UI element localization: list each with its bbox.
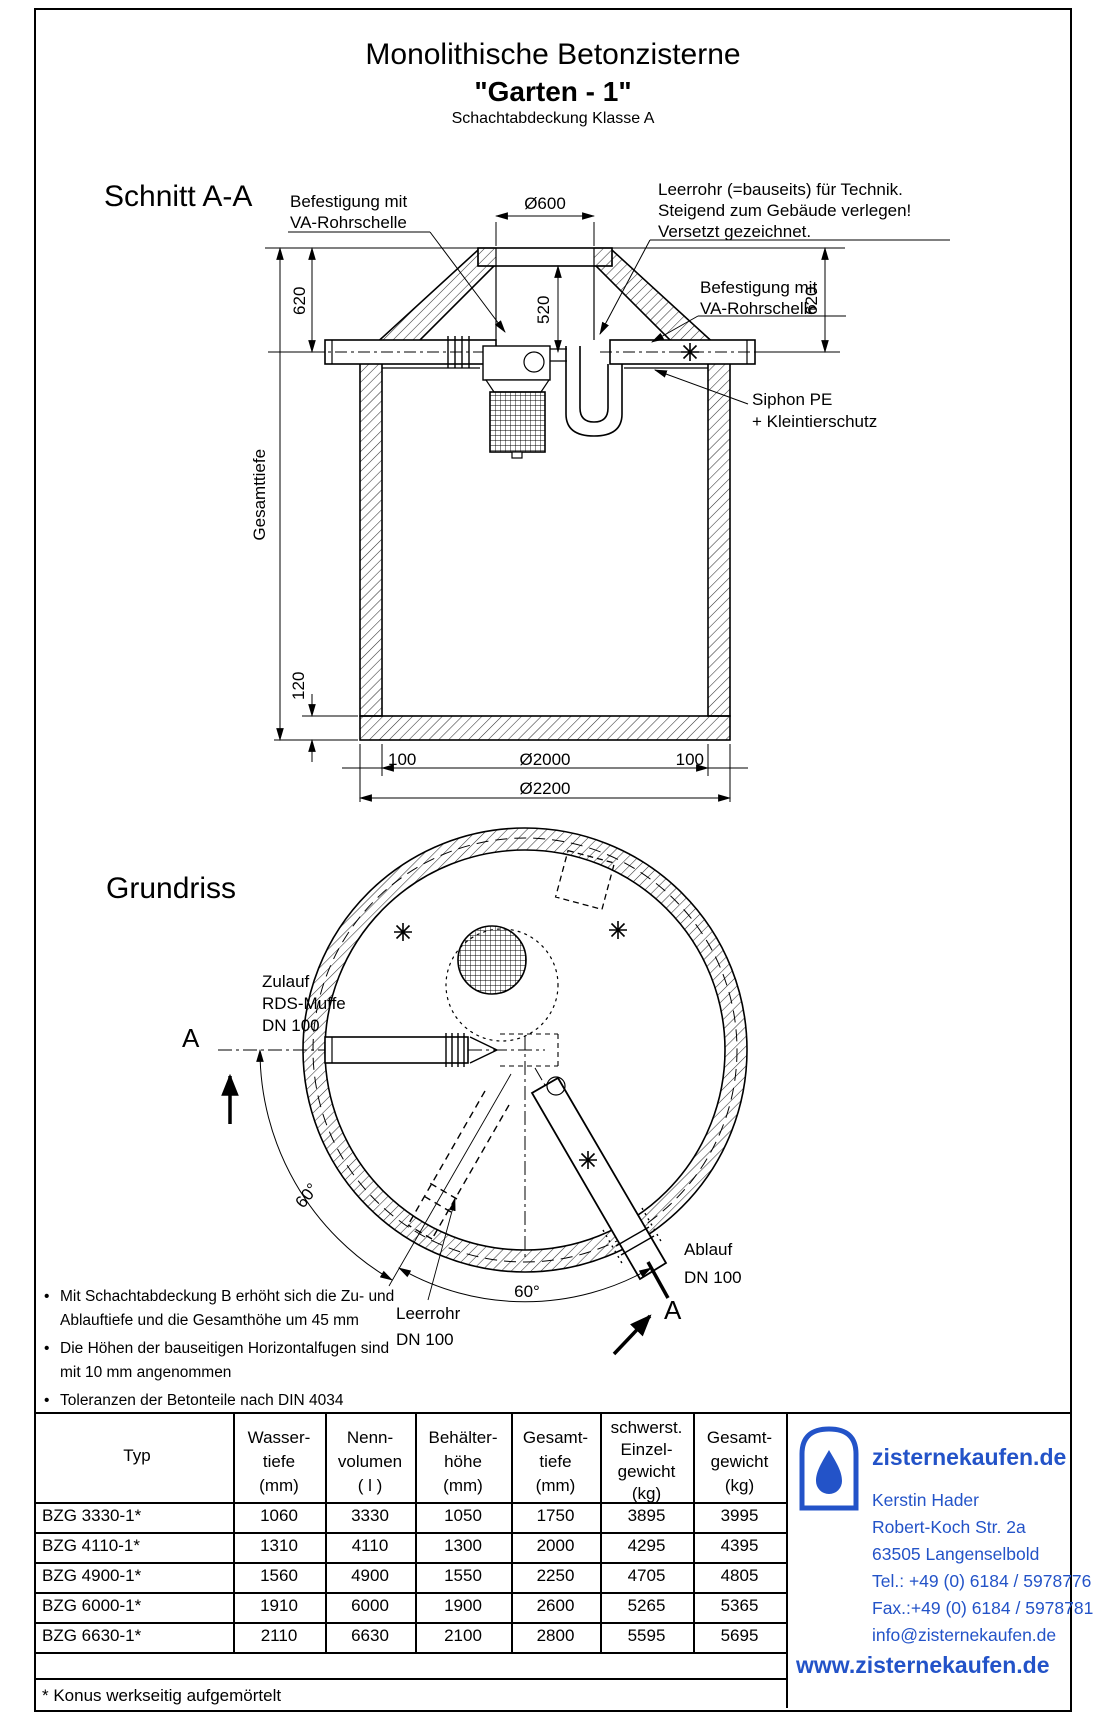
asterisk-mark bbox=[609, 921, 627, 939]
company-contact-line: 63505 Langenselbold bbox=[872, 1544, 1039, 1564]
table-top-border bbox=[36, 1412, 1070, 1414]
dim-inner-diameter: Ø2000 bbox=[495, 750, 595, 770]
note-bullet: • bbox=[44, 1392, 49, 1410]
siphon-label-line1: Siphon PE bbox=[752, 390, 832, 410]
company-cell-divider bbox=[786, 1412, 788, 1708]
dim-shaft-diameter: Ø600 bbox=[496, 194, 594, 214]
dim-620-left: 620 bbox=[290, 261, 310, 341]
table-cell: 3330 bbox=[325, 1506, 415, 1526]
drain-label-line2: DN 100 bbox=[684, 1268, 742, 1288]
table-row-typ: BZG 3330-1* bbox=[42, 1506, 141, 1526]
inlet-label-line2: RDS-Muffe bbox=[262, 994, 346, 1014]
col-header: Gesamt- bbox=[511, 1428, 600, 1448]
company-logo bbox=[796, 1424, 862, 1512]
section-marker-left: A bbox=[182, 1024, 199, 1054]
table-cell: 4705 bbox=[600, 1566, 693, 1586]
section-heading: Schnitt A-A bbox=[104, 180, 252, 215]
inlet-label-line3: DN 100 bbox=[262, 1016, 320, 1036]
dim-620-right: 620 bbox=[802, 261, 822, 341]
clamp-label-left-line2: VA-Rohrschelle bbox=[290, 213, 407, 233]
section-view-drawing bbox=[265, 216, 950, 802]
table-row-typ: BZG 4900-1* bbox=[42, 1566, 141, 1586]
conduit-label-line1: Leerrohr bbox=[396, 1304, 460, 1324]
plan-view-drawing bbox=[218, 828, 747, 1354]
table-cell: 4395 bbox=[693, 1536, 786, 1556]
col-header: Einzel- bbox=[600, 1440, 693, 1460]
filter-basket bbox=[490, 392, 545, 452]
col-header: (mm) bbox=[511, 1476, 600, 1496]
table-cell: 1560 bbox=[233, 1566, 325, 1586]
table-cell: 6000 bbox=[325, 1596, 415, 1616]
dim-outer-diameter: Ø2200 bbox=[495, 779, 595, 799]
col-header: Nenn- bbox=[325, 1428, 415, 1448]
angle-label-bottom: 60° bbox=[505, 1282, 549, 1302]
note-1-line2: Ablauftiefe und die Gesamthöhe um 45 mm bbox=[60, 1312, 359, 1330]
table-row-typ: BZG 4110-1* bbox=[42, 1536, 140, 1556]
dim-total-depth: Gesamttiefe bbox=[250, 445, 270, 545]
table-cell: 2000 bbox=[511, 1536, 600, 1556]
clamp-label-left-line1: Befestigung mit bbox=[290, 192, 407, 212]
col-header: (kg) bbox=[600, 1484, 693, 1504]
company-fax: Fax.:+49 (0) 6184 / 5978781 bbox=[872, 1598, 1093, 1618]
table-cell: 4805 bbox=[693, 1566, 786, 1586]
table-cell: 4295 bbox=[600, 1536, 693, 1556]
note-bullet: • bbox=[44, 1340, 49, 1358]
section-marker-bottom: A bbox=[664, 1296, 681, 1326]
table-cell: 4900 bbox=[325, 1566, 415, 1586]
cover-class-label: Schachtabdeckung Klasse A bbox=[36, 110, 1070, 128]
note-3-line1: Toleranzen der Betonteile nach DIN 4034 bbox=[60, 1392, 344, 1410]
company-email: info@zisternekaufen.de bbox=[872, 1625, 1056, 1645]
note-bullet: • bbox=[44, 1288, 49, 1306]
table-cell: 5695 bbox=[693, 1626, 786, 1646]
table-cell: 1900 bbox=[415, 1596, 511, 1616]
table-cell: 1910 bbox=[233, 1596, 325, 1616]
dim-wall-right: 100 bbox=[664, 750, 704, 770]
table-cell: 1750 bbox=[511, 1506, 600, 1526]
col-header: tiefe bbox=[233, 1452, 325, 1472]
col-header: Behälter- bbox=[415, 1428, 511, 1448]
table-cell: 5265 bbox=[600, 1596, 693, 1616]
table-cell: 2110 bbox=[233, 1626, 325, 1646]
col-header: ( l ) bbox=[325, 1476, 415, 1496]
filter-housing bbox=[483, 346, 550, 380]
table-cell: 6630 bbox=[325, 1626, 415, 1646]
col-header: gewicht bbox=[693, 1452, 786, 1472]
table-cell: 1310 bbox=[233, 1536, 325, 1556]
col-header-typ: Typ bbox=[42, 1446, 232, 1466]
table-cell: 5595 bbox=[600, 1626, 693, 1646]
table-cell: 2800 bbox=[511, 1626, 600, 1646]
table-cell: 3895 bbox=[600, 1506, 693, 1526]
asterisk-mark bbox=[579, 1151, 597, 1169]
table-cell: 1050 bbox=[415, 1506, 511, 1526]
note-1-line1: Mit Schachtabdeckung B erhöht sich die Z… bbox=[60, 1288, 394, 1306]
col-header: volumen bbox=[325, 1452, 415, 1472]
table-cell: 2250 bbox=[511, 1566, 600, 1586]
col-header: schwerst. bbox=[600, 1418, 693, 1438]
filter-basket-plan bbox=[458, 926, 526, 994]
col-header: (kg) bbox=[693, 1476, 786, 1496]
table-cell: 2600 bbox=[511, 1596, 600, 1616]
table-cell: 4110 bbox=[325, 1536, 415, 1556]
clamp-label-right-line1: Befestigung mit bbox=[700, 278, 817, 298]
section-arrow-bottom bbox=[614, 1316, 650, 1354]
table-cell: 5365 bbox=[693, 1596, 786, 1616]
table-cell: 1060 bbox=[233, 1506, 325, 1526]
dim-520: 520 bbox=[534, 270, 554, 350]
conduit-note-line1: Leerrohr (=bauseits) für Technik. bbox=[658, 180, 903, 200]
inlet-label-line1: Zulauf bbox=[262, 972, 309, 992]
conduit-label-line2: DN 100 bbox=[396, 1330, 454, 1350]
note-2-line1: Die Höhen der bauseitigen Horizontalfuge… bbox=[60, 1340, 389, 1358]
tank-floor bbox=[360, 716, 730, 740]
conduit-note-line2: Steigend zum Gebäude verlegen! bbox=[658, 201, 911, 221]
dim-wall-left: 100 bbox=[388, 750, 416, 770]
company-name: zisternekaufen.de bbox=[872, 1444, 1066, 1470]
col-header: Gesamt- bbox=[693, 1428, 786, 1448]
drawing-sheet: Monolithische Betonzisterne "Garten - 1"… bbox=[0, 0, 1106, 1720]
shaft-collar bbox=[478, 248, 612, 266]
dim-floor-thickness: 120 bbox=[289, 656, 309, 716]
col-header: tiefe bbox=[511, 1452, 600, 1472]
table-row-typ: BZG 6630-1* bbox=[42, 1626, 141, 1646]
tank-wall-right bbox=[708, 358, 730, 716]
col-header: gewicht bbox=[600, 1462, 693, 1482]
table-cell: 1300 bbox=[415, 1536, 511, 1556]
table-row-typ: BZG 6000-1* bbox=[42, 1596, 141, 1616]
table-footnote: * Konus werkseitig aufgemörtelt bbox=[42, 1686, 281, 1706]
company-contact-line: Robert-Koch Str. 2a bbox=[872, 1517, 1026, 1537]
company-contact-line: Kerstin Hader bbox=[872, 1490, 979, 1510]
conduit-note-line3: Versetzt gezeichnet. bbox=[658, 222, 811, 242]
sheet-subtitle: "Garten - 1" bbox=[36, 76, 1070, 108]
sheet-title: Monolithische Betonzisterne bbox=[36, 38, 1070, 73]
company-website: www.zisternekaufen.de bbox=[796, 1652, 1050, 1678]
asterisk-mark bbox=[394, 923, 412, 941]
table-cell: 3995 bbox=[693, 1506, 786, 1526]
col-header: höhe bbox=[415, 1452, 511, 1472]
note-2-line2: mit 10 mm angenommen bbox=[60, 1364, 231, 1382]
asterisk-mark bbox=[681, 343, 699, 361]
table-cell: 1550 bbox=[415, 1566, 511, 1586]
drain-label-line1: Ablauf bbox=[684, 1240, 732, 1260]
table-cell: 2100 bbox=[415, 1626, 511, 1646]
clamp-label-right-line2: VA-Rohrschelle bbox=[700, 299, 817, 319]
tank-wall-left bbox=[360, 358, 382, 716]
company-phone: Tel.: +49 (0) 6184 / 5978776 bbox=[872, 1571, 1091, 1591]
col-header: (mm) bbox=[415, 1476, 511, 1496]
siphon-label-line2: + Kleintierschutz bbox=[752, 412, 877, 432]
col-header: (mm) bbox=[233, 1476, 325, 1496]
col-header: Wasser- bbox=[233, 1428, 325, 1448]
plan-heading: Grundriss bbox=[106, 872, 236, 907]
